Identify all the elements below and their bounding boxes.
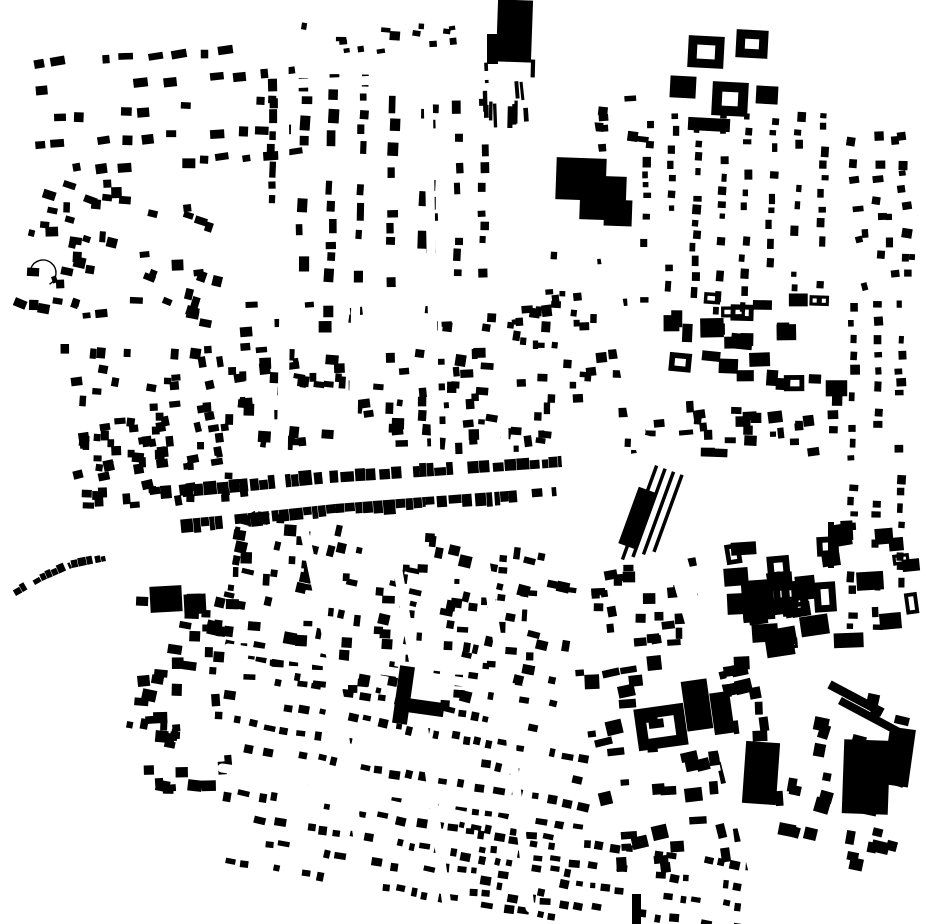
landmark-top-tower-annex: [487, 34, 498, 64]
district-n-top-sparse: [301, 22, 457, 54]
landmark-top-tower-block: [496, 0, 533, 63]
street-north-cross: [286, 74, 520, 84]
landmark-e-block-a: [741, 579, 776, 621]
landmark-se-slab-c: [742, 741, 780, 805]
district-nw-suburb-lower: [12, 168, 234, 337]
landmark-west-chunk-b: [183, 593, 206, 614]
landmark-e-courtyard-c: [813, 581, 837, 612]
landmark-ne-block-5: [756, 85, 779, 104]
district-ne-grid: [637, 106, 831, 318]
street-south-street-3: [476, 502, 530, 908]
landmark-ne-courtyard-4: [711, 81, 749, 117]
district-ne-courtyard-row: [661, 288, 851, 397]
landmark-ne-block-3: [669, 75, 696, 98]
landmark-ne-courtyard-1: [687, 35, 725, 69]
figure-ground-map-page: [0, 0, 930, 924]
street-ns-street-a: [282, 58, 285, 468]
landmark-bottom-bar: [632, 894, 641, 924]
district-ne-east-strip: [845, 130, 917, 292]
landmark-se-industrial-a: [842, 739, 891, 815]
landmark-west-chunk-a: [149, 585, 182, 613]
street-ns-street-b: [352, 292, 356, 470]
landmark-ne-bar-6: [688, 117, 731, 132]
landmark-ne-large-complex-c: [604, 200, 633, 227]
landmark-right-thin-bar: [828, 522, 834, 568]
landmark-e-block-d: [751, 623, 778, 643]
street-east-road: [648, 460, 930, 470]
street-ns-street-d: [503, 330, 505, 468]
district-bottom-edge-rows: [439, 819, 754, 924]
district-n-mid-slivers: [481, 59, 537, 129]
landmark-ne-courtyard-2: [735, 29, 768, 59]
street-ns-street-c: [428, 84, 436, 462]
landmark-se-industrial-b: [882, 726, 916, 787]
building-footprint-map: [0, 0, 930, 924]
district-nw-suburb-upper: [29, 39, 303, 179]
district-ne-top-gap-sparse: [591, 95, 649, 152]
